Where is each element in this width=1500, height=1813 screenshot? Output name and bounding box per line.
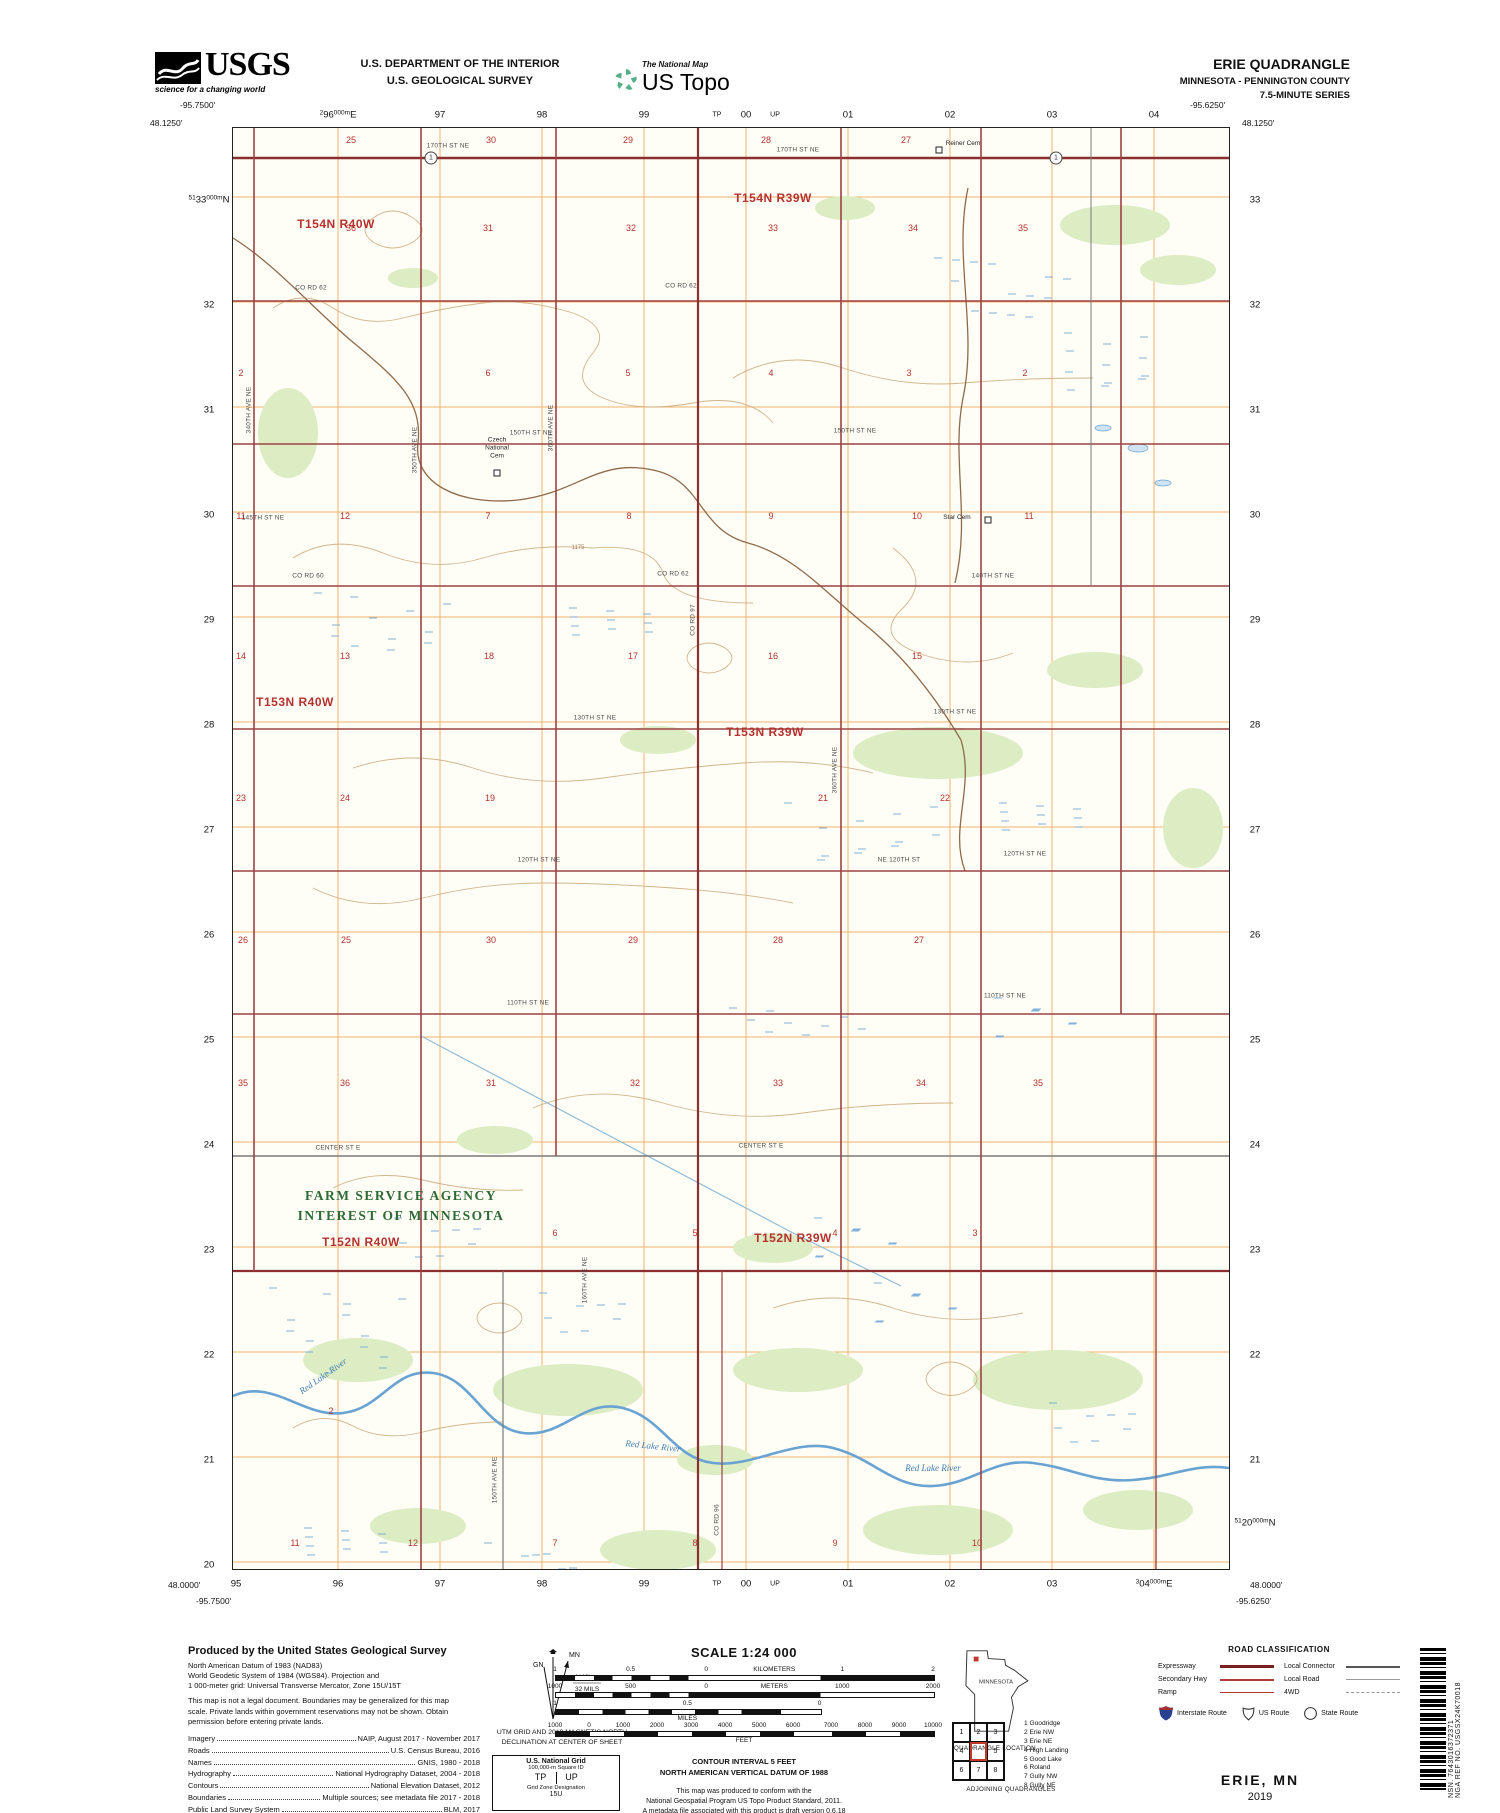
ustopo-title: US Topo bbox=[642, 69, 730, 96]
dot-leader bbox=[214, 1757, 416, 1765]
grid-number: 28 bbox=[1250, 720, 1261, 731]
adjoining-cell: 3 bbox=[987, 1723, 1004, 1742]
datum-line: World Geodetic System of 1984 (WGS84). P… bbox=[188, 1671, 480, 1681]
road-class-sample bbox=[1346, 1679, 1400, 1680]
sheet-name: ERIE, MN bbox=[1185, 1772, 1335, 1788]
source-key: Public Land Survey System bbox=[188, 1805, 280, 1813]
grid-edge-label: 27 bbox=[1250, 825, 1261, 836]
grid-number: 96 bbox=[333, 1579, 344, 1590]
scale-tick: 6000 bbox=[786, 1722, 800, 1729]
grid-edge-label: 04 bbox=[1149, 110, 1160, 121]
source-key: Imagery bbox=[188, 1734, 215, 1745]
grid-number: TP bbox=[713, 112, 722, 119]
scale-tick: 7000 bbox=[824, 1722, 838, 1729]
grid-number: 98 bbox=[537, 1579, 548, 1590]
grid-edge-label: 02 bbox=[945, 1579, 956, 1590]
adjoining-name: 6 Roland bbox=[1024, 1764, 1114, 1773]
ft-bar: 1000010002000300040005000600070008000900… bbox=[555, 1722, 933, 1746]
road-class-row: Expressway bbox=[1158, 1660, 1274, 1673]
grid-edge-label: 30 bbox=[204, 510, 215, 521]
adjoining-name: 4 High Landing bbox=[1024, 1747, 1114, 1756]
source-value: GNIS, 1980 - 2018 bbox=[417, 1758, 480, 1769]
grid-number: 03 bbox=[1047, 110, 1058, 121]
source-key: Hydrography bbox=[188, 1769, 231, 1780]
conformance-line: A metadata file associated with this pro… bbox=[555, 1807, 933, 1813]
source-row: NamesGNIS, 1980 - 2018 bbox=[188, 1757, 480, 1769]
legal-disclaimer: This map is not a legal document. Bounda… bbox=[188, 1696, 458, 1726]
state-route-shield: State Route bbox=[1303, 1706, 1358, 1721]
grid-number: 26 bbox=[1250, 930, 1261, 941]
contour-lines bbox=[273, 211, 1093, 1436]
vertical-datum: NORTH AMERICAN VERTICAL DATUM OF 1988 bbox=[555, 1767, 933, 1778]
dot-leader bbox=[233, 1768, 333, 1776]
grid-edge-label: 23 bbox=[204, 1245, 215, 1256]
grid-superscript: 2 bbox=[320, 110, 324, 117]
datum-lines: North American Datum of 1983 (NAD83)Worl… bbox=[188, 1661, 480, 1691]
grid-number: 22 bbox=[204, 1350, 215, 1361]
route-shields: Interstate Route US Route State Route bbox=[1158, 1705, 1400, 1721]
grid-edge-label: 25 bbox=[204, 1035, 215, 1046]
grid-number: UP bbox=[770, 112, 780, 119]
grid-number: 22 bbox=[1250, 1350, 1261, 1361]
red-lake-river bbox=[233, 425, 1229, 1486]
grid-number: 98 bbox=[537, 110, 548, 121]
adjoining-quadrangles: 12345678 1 Goodridge2 Erie NW3 Erie NE4 … bbox=[952, 1722, 1005, 1781]
source-row: Public Land Survey SystemBLM, 2017 bbox=[188, 1804, 480, 1813]
grid-edge-label: 33 bbox=[1250, 195, 1261, 206]
corner-top-left-lon: -95.7500' bbox=[180, 100, 215, 110]
grid-superscript: 000m bbox=[1150, 1579, 1166, 1586]
source-value: National Elevation Dataset, 2012 bbox=[371, 1781, 480, 1792]
scale-tick: 0 bbox=[704, 1666, 708, 1673]
grid-superscript: 000m bbox=[334, 110, 350, 117]
grid-number: 32 bbox=[1250, 300, 1261, 311]
scale-tick: 9000 bbox=[892, 1722, 906, 1729]
adjoining-cell bbox=[970, 1742, 987, 1761]
sheet-year: 2019 bbox=[1185, 1791, 1335, 1803]
grid-edge-label: 27 bbox=[204, 825, 215, 836]
state-route-circle-icon bbox=[1303, 1706, 1318, 1721]
source-row: HydrographyNational Hydrography Dataset,… bbox=[188, 1768, 480, 1780]
national-map-label: The National Map bbox=[642, 60, 708, 69]
corner-bottom-right-lon: -95.6250' bbox=[1236, 1596, 1271, 1606]
grid-edge-label: 03 bbox=[1047, 1579, 1058, 1590]
grid-edge-label: TP bbox=[713, 1581, 722, 1588]
quad-series: 7.5-MINUTE SERIES bbox=[990, 89, 1350, 103]
road-class-sample bbox=[1220, 1692, 1274, 1693]
grid-edge-label: 25 bbox=[1250, 1035, 1261, 1046]
grid-edge-label: UP bbox=[770, 1581, 780, 1588]
grid-edge-label: 24 bbox=[204, 1140, 215, 1151]
road-class-row: Ramp bbox=[1158, 1686, 1274, 1699]
grid-edge-label: 24 bbox=[1250, 1140, 1261, 1151]
grid-number: 33 bbox=[196, 195, 207, 206]
grid-number: 27 bbox=[1250, 825, 1261, 836]
grid-letter: N bbox=[1269, 1518, 1276, 1529]
grid-number: 24 bbox=[204, 1140, 215, 1151]
corner-bottom-left-lon: -95.7500' bbox=[196, 1596, 231, 1606]
grid-superscript: 51 bbox=[189, 195, 196, 202]
source-key: Roads bbox=[188, 1746, 210, 1757]
adjoining-cell: 2 bbox=[970, 1723, 987, 1742]
cemetery-icon bbox=[494, 470, 501, 477]
grid-number: 99 bbox=[639, 110, 650, 121]
km-bar: 10.50KILOMETERS12 bbox=[555, 1666, 933, 1683]
scale-tick: 2 bbox=[931, 1666, 935, 1673]
road-class-row: Secondary Hwy bbox=[1158, 1673, 1274, 1686]
grid-edge-label: 5120000mN bbox=[1235, 1518, 1276, 1529]
grid-edge-label: 296000mE bbox=[320, 110, 357, 121]
scale-tick: KILOMETERS bbox=[753, 1666, 795, 1673]
grid-number: 00 bbox=[741, 110, 752, 121]
grid-number: 04 bbox=[1139, 1579, 1150, 1590]
grid-number: 23 bbox=[204, 1245, 215, 1256]
scale-tick: 1000 bbox=[616, 1722, 630, 1729]
route-marker: 1 bbox=[1050, 152, 1063, 165]
grid-edge-label: 32 bbox=[1250, 300, 1261, 311]
scale-tick: 3000 bbox=[684, 1722, 698, 1729]
dept-line1: U.S. DEPARTMENT OF THE INTERIOR bbox=[330, 56, 590, 73]
grid-edge-label: 23 bbox=[1250, 1245, 1261, 1256]
grid-number: 20 bbox=[204, 1560, 215, 1571]
adjoining-grid: 12345678 bbox=[952, 1722, 1005, 1781]
grid-edge-label: 98 bbox=[537, 1579, 548, 1590]
nsn-label: NSN. 7643016372371 bbox=[1448, 1648, 1455, 1798]
dot-leader bbox=[282, 1804, 442, 1812]
grid-edge-label: 31 bbox=[1250, 405, 1261, 416]
grid-edge-label: 32 bbox=[204, 300, 215, 311]
source-key: Names bbox=[188, 1758, 212, 1769]
adjoining-cell: 1 bbox=[953, 1723, 970, 1742]
scale-tick: 0.5 bbox=[626, 1666, 635, 1673]
scale-tick: 2000 bbox=[926, 1683, 940, 1690]
road-class-sample bbox=[1346, 1692, 1400, 1693]
dot-leader bbox=[217, 1733, 355, 1741]
grid-edge-label: 29 bbox=[204, 615, 215, 626]
produced-title: Produced by the United States Geological… bbox=[188, 1645, 480, 1657]
source-key: Contours bbox=[188, 1781, 218, 1792]
adjoining-cell: 4 bbox=[953, 1742, 970, 1761]
adjoining-names: 1 Goodridge2 Erie NW3 Erie NE4 High Land… bbox=[1024, 1720, 1114, 1791]
adjoining-name: 2 Erie NW bbox=[1024, 1729, 1114, 1738]
road-class-row: Local Connector bbox=[1284, 1660, 1400, 1673]
quad-title: ERIE QUADRANGLE bbox=[990, 54, 1350, 75]
source-row: ContoursNational Elevation Dataset, 2012 bbox=[188, 1780, 480, 1792]
grid-number: 24 bbox=[1250, 1140, 1261, 1151]
topo-map: T154N R40WT154N R39WT153N R40WT153N R39W… bbox=[232, 127, 1230, 1570]
grid-edge-label: 01 bbox=[843, 110, 854, 121]
grid-letter: E bbox=[1166, 1579, 1172, 1590]
state-route-label: State Route bbox=[1321, 1710, 1358, 1717]
grid-edge-label: 22 bbox=[204, 1350, 215, 1361]
grid-number: 25 bbox=[1250, 1035, 1261, 1046]
interstate-shield-icon bbox=[1158, 1705, 1174, 1721]
grid-superscript: 000m bbox=[206, 195, 222, 202]
grid-number: 00 bbox=[741, 1579, 752, 1590]
grid-edge-label: 95 bbox=[231, 1579, 242, 1590]
grid-number: 02 bbox=[945, 110, 956, 121]
usgs-logo: USGS science for a changing world bbox=[155, 52, 355, 96]
streams bbox=[233, 188, 968, 871]
grid-number: 30 bbox=[204, 510, 215, 521]
interstate-label: Interstate Route bbox=[1177, 1710, 1227, 1717]
grid-edge-label: 00 bbox=[741, 1579, 752, 1590]
map-artwork bbox=[233, 128, 1229, 1569]
adjoining-name: 7 Gully NW bbox=[1024, 1773, 1114, 1782]
adjoining-name: 1 Goodridge bbox=[1024, 1720, 1114, 1729]
datum-line: North American Datum of 1983 (NAD83) bbox=[188, 1661, 480, 1671]
vegetation-patches bbox=[258, 196, 1223, 1569]
grid-letter: N bbox=[223, 195, 230, 206]
grid-edge-label: 98 bbox=[537, 110, 548, 121]
usng-id-tp: TP bbox=[526, 1772, 556, 1784]
grid-superscript: 3 bbox=[1136, 1579, 1140, 1586]
grid-edge-label: 304000mE bbox=[1136, 1579, 1173, 1590]
grid-edge-label: 31 bbox=[204, 405, 215, 416]
grid-edge-label: 02 bbox=[945, 110, 956, 121]
grid-number: UP bbox=[770, 1581, 780, 1588]
scale-tick: 0 bbox=[587, 1722, 591, 1729]
miles-label: MILES bbox=[678, 1715, 698, 1722]
quad-subtitle: MINNESOTA - PENNINGTON COUNTY bbox=[990, 75, 1350, 89]
grid-number: 95 bbox=[231, 1579, 242, 1590]
road-class-sample bbox=[1346, 1666, 1400, 1668]
nga-ref-label: NGA REF NO. USGSX24K70018 bbox=[1455, 1648, 1462, 1798]
cemetery-icon bbox=[985, 517, 992, 524]
grid-edge-label: UP bbox=[770, 112, 780, 119]
scale-tick: 5000 bbox=[752, 1722, 766, 1729]
us-route-shield: US Route bbox=[1241, 1706, 1289, 1721]
road-classification: ROAD CLASSIFICATION ExpresswaySecondary … bbox=[1158, 1645, 1400, 1721]
grid-edge-label: 30 bbox=[1250, 510, 1261, 521]
grid-number: 02 bbox=[945, 1579, 956, 1590]
grid-edge-label: 96 bbox=[333, 1579, 344, 1590]
grid-number: 33 bbox=[1250, 195, 1261, 206]
scale-tick: 1 bbox=[840, 1666, 844, 1673]
scale-tick: 0 bbox=[704, 1683, 708, 1690]
scale-tick: 1000 bbox=[548, 1683, 562, 1690]
adjoining-cell: 7 bbox=[970, 1761, 987, 1780]
road-class-label: Ramp bbox=[1158, 1689, 1220, 1696]
grid-number: 03 bbox=[1047, 1579, 1058, 1590]
dot-leader bbox=[228, 1792, 320, 1800]
adjoining-name: 3 Erie NE bbox=[1024, 1738, 1114, 1747]
usgs-wave-icon bbox=[155, 52, 201, 84]
grid-number: 97 bbox=[435, 1579, 446, 1590]
road-class-label: Secondary Hwy bbox=[1158, 1676, 1220, 1683]
grid-number: 21 bbox=[1250, 1455, 1261, 1466]
usgs-topo-sheet: USGS science for a changing world U.S. D… bbox=[0, 0, 1500, 1813]
scale-tick: 2000 bbox=[650, 1722, 664, 1729]
road-class-title: ROAD CLASSIFICATION bbox=[1158, 1645, 1400, 1654]
road-class-row: 4WD bbox=[1284, 1686, 1400, 1699]
road-class-row: Local Road bbox=[1284, 1673, 1400, 1686]
grid-edge-label: TP bbox=[713, 112, 722, 119]
corner-top-left-lat: 48.1250' bbox=[150, 118, 182, 128]
quad-location-dot bbox=[974, 1657, 979, 1662]
grid-number: 99 bbox=[639, 1579, 650, 1590]
road-class-sample bbox=[1220, 1679, 1274, 1681]
grid-edge-label: 29 bbox=[1250, 615, 1261, 626]
grid-number: 20 bbox=[1242, 1518, 1253, 1529]
contour-note: CONTOUR INTERVAL 5 FEET NORTH AMERICAN V… bbox=[555, 1756, 933, 1779]
source-value: BLM, 2017 bbox=[444, 1805, 480, 1813]
grid-number: 01 bbox=[843, 1579, 854, 1590]
grid-number: 01 bbox=[843, 110, 854, 121]
scale-tick: 1000 bbox=[548, 1722, 562, 1729]
grid-edge-label: 26 bbox=[204, 930, 215, 941]
source-row: BoundariesMultiple sources; see metadata… bbox=[188, 1792, 480, 1804]
grid-number: 21 bbox=[204, 1455, 215, 1466]
conformance-line: National Geospatial Program US Topo Prod… bbox=[555, 1797, 933, 1807]
source-key: Boundaries bbox=[188, 1793, 226, 1804]
grid-number: 29 bbox=[1250, 615, 1261, 626]
adjoining-name: 5 Good Lake bbox=[1024, 1756, 1114, 1765]
grid-edge-label: 28 bbox=[1250, 720, 1261, 731]
department-lines: U.S. DEPARTMENT OF THE INTERIOR U.S. GEO… bbox=[330, 56, 590, 89]
grid-number: 27 bbox=[204, 825, 215, 836]
grid-number: 96 bbox=[323, 110, 334, 121]
quad-title-block: ERIE QUADRANGLE MINNESOTA - PENNINGTON C… bbox=[990, 54, 1350, 104]
grid-number: 25 bbox=[204, 1035, 215, 1046]
grid-edge-label: 22 bbox=[1250, 1350, 1261, 1361]
scale-tick: 500 bbox=[625, 1683, 636, 1690]
data-sources-table: ImageryNAIP, August 2017 - November 2017… bbox=[188, 1733, 480, 1813]
grid-number: 04 bbox=[1149, 110, 1160, 121]
us-route-label: US Route bbox=[1259, 1710, 1289, 1717]
conformance-note: This map was produced to conform with th… bbox=[555, 1787, 933, 1813]
m-bar: 10005000METERS10002000 bbox=[555, 1683, 933, 1700]
corner-bottom-left-lat: 48.0000' bbox=[168, 1580, 200, 1590]
grid-edge-label: 99 bbox=[639, 110, 650, 121]
scale-tick: 8000 bbox=[858, 1722, 872, 1729]
corner-top-right-lon: -95.6250' bbox=[1190, 100, 1225, 110]
scale-block: SCALE 1:24 000 10.50KILOMETERS12 1000500… bbox=[555, 1645, 933, 1813]
source-value: National Hydrography Dataset, 2004 - 201… bbox=[335, 1769, 480, 1780]
corner-bottom-right-lat: 48.0000' bbox=[1250, 1580, 1282, 1590]
grid-edge-label: 21 bbox=[204, 1455, 215, 1466]
road-class-label: Expressway bbox=[1158, 1663, 1220, 1670]
contour-interval: CONTOUR INTERVAL 5 FEET bbox=[555, 1756, 933, 1767]
grid-number: 23 bbox=[1250, 1245, 1261, 1256]
usgs-tagline: science for a changing world bbox=[155, 85, 265, 94]
scale-tick: 4000 bbox=[718, 1722, 732, 1729]
grid-number: 97 bbox=[435, 110, 446, 121]
grid-number: 28 bbox=[204, 720, 215, 731]
adjoining-caption: ADJOINING QUADRANGLES bbox=[926, 1786, 1096, 1793]
scale-tick: 1 bbox=[553, 1700, 557, 1707]
grid-edge-label: 99 bbox=[639, 1579, 650, 1590]
dept-line2: U.S. GEOLOGICAL SURVEY bbox=[330, 73, 590, 90]
grid-number: 26 bbox=[204, 930, 215, 941]
road-class-sample bbox=[1220, 1665, 1274, 1668]
grid-number: 30 bbox=[1250, 510, 1261, 521]
grid-number: 29 bbox=[204, 615, 215, 626]
road-class-label: 4WD bbox=[1284, 1689, 1346, 1696]
source-row: ImageryNAIP, August 2017 - November 2017 bbox=[188, 1733, 480, 1745]
scale-tick: 0.5 bbox=[683, 1700, 692, 1707]
source-value: Multiple sources; see metadata file 2017… bbox=[322, 1793, 480, 1804]
gn-label: GN bbox=[533, 1662, 544, 1669]
grid-edge-label: 28 bbox=[204, 720, 215, 731]
conformance-line: This map was produced to conform with th… bbox=[555, 1787, 933, 1797]
cemetery-icon bbox=[936, 147, 943, 154]
grid-letter: E bbox=[350, 110, 356, 121]
grid-edge-label: 20 bbox=[204, 1560, 215, 1571]
road-class-label: Local Connector bbox=[1284, 1663, 1346, 1670]
adjoining-cell: 5 bbox=[987, 1742, 1004, 1761]
adjoining-cell: 8 bbox=[987, 1761, 1004, 1780]
scale-tick: METERS bbox=[761, 1683, 788, 1690]
sheet-name-block: ERIE, MN 2019 bbox=[1185, 1772, 1335, 1803]
usgs-wordmark: USGS bbox=[205, 46, 290, 84]
grid-edge-label: 01 bbox=[843, 1579, 854, 1590]
grid-edge-label: 00 bbox=[741, 110, 752, 121]
dot-leader bbox=[220, 1780, 368, 1788]
grid-edge-label: 03 bbox=[1047, 110, 1058, 121]
usgs-logo-mark bbox=[155, 52, 201, 84]
barcode bbox=[1420, 1648, 1446, 1790]
adjoining-cell: 6 bbox=[953, 1761, 970, 1780]
grid-edge-label: 26 bbox=[1250, 930, 1261, 941]
corner-top-right-lat: 48.1250' bbox=[1242, 118, 1274, 128]
datum-line: 1 000-meter grid: Universal Transverse M… bbox=[188, 1681, 480, 1691]
svg-text:MINNESOTA: MINNESOTA bbox=[979, 1680, 1013, 1686]
grid-edge-label: 97 bbox=[435, 1579, 446, 1590]
scale-tick: 1 bbox=[553, 1666, 557, 1673]
scale-tick: 0 bbox=[818, 1700, 822, 1707]
feet-label: FEET bbox=[736, 1737, 753, 1744]
dot-leader bbox=[212, 1745, 389, 1753]
grid-edge-label: 21 bbox=[1250, 1455, 1261, 1466]
national-map-icon bbox=[612, 66, 640, 94]
interstate-shield: Interstate Route bbox=[1158, 1705, 1227, 1721]
source-row: RoadsU.S. Census Bureau, 2016 bbox=[188, 1745, 480, 1757]
grid-edge-label: 97 bbox=[435, 110, 446, 121]
us-route-shield-icon bbox=[1241, 1706, 1256, 1721]
grid-number: 31 bbox=[204, 405, 215, 416]
road-class-label: Local Road bbox=[1284, 1676, 1346, 1683]
grid-number: TP bbox=[713, 1581, 722, 1588]
grid-number: 31 bbox=[1250, 405, 1261, 416]
mi-bar: 10.50 MILES bbox=[555, 1700, 933, 1722]
grid-superscript: 51 bbox=[1235, 1518, 1242, 1525]
barcode-labels: NSN. 7643016372371 NGA REF NO. USGSX24K7… bbox=[1448, 1648, 1462, 1798]
grid-superscript: 000m bbox=[1252, 1518, 1268, 1525]
grid-edge-label: 5133000mN bbox=[189, 195, 230, 206]
scale-title: SCALE 1:24 000 bbox=[555, 1645, 933, 1660]
route-marker: 1 bbox=[425, 152, 438, 165]
production-credits: Produced by the United States Geological… bbox=[188, 1645, 480, 1813]
grid-number: 32 bbox=[204, 300, 215, 311]
scale-tick: 1000 bbox=[835, 1683, 849, 1690]
